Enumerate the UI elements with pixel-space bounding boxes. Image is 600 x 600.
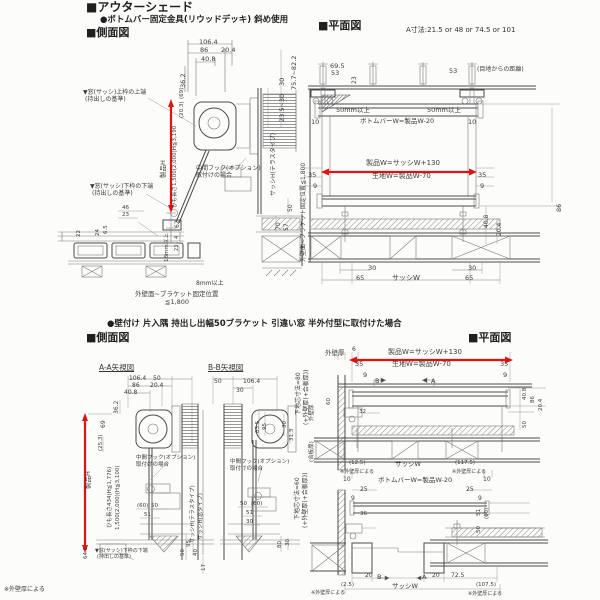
annotation: ≦1,800 <box>165 299 189 306</box>
dim-label: 57 <box>284 223 290 231</box>
dim-label: 36 <box>360 512 367 518</box>
dim-label: 36.2 <box>180 74 187 88</box>
dim-label: 10 <box>483 477 491 483</box>
dim-label: サッシH(テラスタイプ) <box>271 133 277 196</box>
dim-label: 生地W=製品W-70 <box>392 361 451 368</box>
dim-label: 86 <box>531 396 537 403</box>
dim-label: 4 <box>175 236 180 239</box>
dim-label: B <box>375 378 379 385</box>
dim-label: 51 <box>477 509 483 516</box>
dim-label: (20.3) <box>180 101 186 118</box>
dim-label: (107.5) <box>476 583 496 589</box>
dim-label: (60) <box>485 508 491 519</box>
dim-label: 25 <box>360 487 368 493</box>
annotation: 外壁面~ブラケット固定位置≦1,800 <box>301 163 307 262</box>
dim-label: ひも長さ1,500(2,000)H≦3,190 <box>173 126 179 208</box>
dim-label: 50 <box>181 549 187 556</box>
dim-label: 30 <box>286 539 292 546</box>
dim-label: 20.4 <box>150 383 163 389</box>
dim-label: 23 <box>122 213 129 219</box>
dim-label: 製品H <box>85 471 92 489</box>
plan-view-2-heading: ■平面図 <box>468 332 511 344</box>
dim-label: 60 <box>327 398 333 405</box>
dim-label: 23.5~30 <box>279 94 286 122</box>
dim-label: 23 <box>175 245 180 251</box>
dim-label: 86 <box>556 204 563 212</box>
dim-label: (12.5) <box>349 461 366 467</box>
dim-label: ひも長さ434(H≦1,776) <box>108 467 114 528</box>
dim-label: 20.4 <box>539 399 545 411</box>
dim-label: 75.7~82.2 <box>291 56 298 90</box>
dim-label: ボトムバーW=製品W-20 <box>360 118 434 125</box>
dim-label: 83.5 <box>256 421 262 433</box>
annotation: ※外壁厚による <box>311 591 345 596</box>
dim-label: 106.4 <box>199 39 218 46</box>
dim-label: 30 <box>468 265 476 272</box>
annotation: (持出しの基準) <box>97 555 131 560</box>
dim-label: 20 <box>365 573 373 579</box>
dim-label: B <box>377 574 381 581</box>
dim-label: 10 <box>343 477 351 483</box>
dim-label: (+外壁厚(+合板厚)) <box>303 473 309 528</box>
dim-label: 95 <box>187 540 193 547</box>
dim-label: 製品H <box>160 160 167 178</box>
section-2-subtitle: ●壁付け 片入隅 持出し出幅50ブラケット 引違い窓 半外付型に取付けた場合 <box>107 320 402 329</box>
dim-label: 35 <box>500 361 508 368</box>
annotation: ※外壁厚による <box>4 587 45 593</box>
aa-section-label: A-A矢視図 <box>99 364 134 372</box>
dim-label: 35 <box>355 361 363 368</box>
dim-label: サッシW <box>392 275 420 282</box>
annotation: ※外壁厚による <box>452 470 486 475</box>
dim-label: ボトムバーW=製品W-20 <box>378 477 452 484</box>
dim-label: 35 <box>308 172 316 179</box>
dim-label: 50 <box>477 526 483 533</box>
dim-label: 70 <box>276 222 282 230</box>
dim-label: 9 <box>351 496 355 502</box>
dim-label: 24 <box>96 229 102 236</box>
dim-label: 50 <box>151 504 158 510</box>
dim-label: 62 <box>175 220 181 228</box>
dim-label: (合板厚) <box>310 441 316 462</box>
dim-label: サッシW <box>395 461 421 468</box>
dim-label: 9 <box>313 183 317 190</box>
dim-label: 30 <box>283 421 289 428</box>
annotation: 取付けの場合 <box>196 173 232 179</box>
dim-label: 30 <box>246 520 253 526</box>
dim-label: 製品W=サッシW+130 <box>388 349 462 356</box>
dim-label: サッシW <box>392 583 418 590</box>
dim-label: 50mm以上 <box>427 107 461 114</box>
annotation: (持出しの基準) <box>85 97 126 103</box>
dim-label: (69) <box>180 88 186 99</box>
dim-label: (60) <box>137 504 148 510</box>
technical-drawing-page: ■アウターシェード ●ボトムバー固定金具(リウッドデッキ) 斜め使用 ■側面図 … <box>0 0 600 600</box>
dim-label: 8mm以上 <box>196 281 224 287</box>
dim-label: 65 <box>465 275 473 282</box>
dim-label: 25 <box>466 487 474 493</box>
dim-label: 1,500(2,000)(H≦3,100) <box>116 465 122 530</box>
dim-label: 95 <box>263 423 269 430</box>
dim-label: A <box>431 378 435 385</box>
label-layer: ■アウターシェード ●ボトムバー固定金具(リウッドデッキ) 斜め使用 ■側面図 … <box>0 0 600 600</box>
dim-label: 32 <box>359 410 366 416</box>
dim-label: (25.3) <box>99 434 105 451</box>
dim-label: 53 <box>449 68 457 75</box>
annotation: 外壁面~ブラケット固定位置 <box>135 291 218 298</box>
annotation: ※外壁厚による <box>340 470 374 475</box>
dim-label: 31.3 <box>290 429 296 441</box>
dim-label: 23 <box>352 76 358 84</box>
dim-label: 30 <box>236 388 244 394</box>
dim-label: (60) <box>251 502 262 508</box>
dim-label: (2.5) <box>341 583 354 589</box>
dim-label: 80 <box>278 541 284 548</box>
dim-label: 9 <box>480 183 484 190</box>
dim-label: 20 <box>432 573 440 579</box>
dim-label: 10 <box>311 119 319 126</box>
dim-label: 69 <box>101 420 107 428</box>
dim-label: 9 <box>478 496 482 502</box>
dim-label: 40 <box>194 549 200 556</box>
page-title: ■アウターシェード <box>86 1 193 14</box>
dim-label: 51 <box>246 511 253 517</box>
annotation: ※外壁厚による <box>468 592 502 597</box>
dim-label: A <box>422 574 426 581</box>
dim-label: 30 <box>368 265 376 272</box>
annotation: 中間フック(オプション) <box>136 456 195 462</box>
dim-label: 64.5 <box>84 547 90 559</box>
dim-label: 35 <box>478 172 486 179</box>
annotation: 中間フック(オプション) <box>230 460 289 466</box>
dim-label: サッシH(テラスタイプ) <box>191 485 197 543</box>
dim-label: 20.4 <box>497 223 503 236</box>
dim-label: 下地芯寸法=60 <box>295 477 301 520</box>
dim-label: 50 <box>288 204 294 212</box>
side-view-2-heading: ■側面図 <box>86 332 129 344</box>
dim-label: 51 <box>144 513 151 519</box>
dim-label: 生地W=製品W-70 <box>372 173 431 180</box>
dim-label: 20.4 <box>221 47 235 54</box>
dim-label: 製品W=サッシW+130 <box>366 160 440 167</box>
dim-label: 36.2 <box>114 401 120 414</box>
a-dimension-note: A寸法:21.5 or 48 or 74.5 or 101 <box>406 27 515 35</box>
dim-label: 6 <box>352 347 356 353</box>
dim-label: 72.5 <box>451 573 464 579</box>
dim-label: 外壁厚 <box>310 404 316 421</box>
dim-label: サッシH(窓タイプ) <box>199 493 205 540</box>
dim-label: 40.8 <box>124 390 137 396</box>
dim-label: 65 <box>356 275 364 282</box>
dim-label: 17 <box>202 564 208 571</box>
dim-label: 53 <box>331 70 339 77</box>
dim-label: 9 <box>363 372 367 379</box>
plan-view-1-heading: ■平面図 <box>318 20 361 32</box>
dim-label: 50 <box>240 502 247 508</box>
dim-label: (117.5) <box>455 461 475 467</box>
dim-label: 下地芯寸法=80 <box>296 372 302 415</box>
dim-label: 10 <box>468 119 476 126</box>
bb-section-label: B-B矢視図 <box>208 364 243 372</box>
side-view-1-heading: ■側面図 <box>86 27 129 39</box>
dim-label: 50mm以上 <box>336 107 370 114</box>
annotation: (目地からの距離) <box>477 67 524 73</box>
dim-label: 40.8 <box>523 388 529 400</box>
dim-label: 106.4 <box>243 379 260 385</box>
dim-label: 6.5 <box>104 225 110 234</box>
dim-label: 86 <box>200 47 208 54</box>
dim-label: 40.8 <box>201 56 215 63</box>
dim-label: 50 <box>214 379 222 385</box>
annotation: 取付けの場合 <box>230 467 263 473</box>
dim-label: 18mm以上 <box>165 233 171 262</box>
page-subtitle: ●ボトムバー固定金具(リウッドデッキ) 斜め使用 <box>100 16 288 25</box>
dim-label: 22 <box>77 230 83 237</box>
dim-label: 30 <box>279 78 286 86</box>
dim-label: 外壁厚 <box>325 350 345 357</box>
dim-label: 50 <box>523 421 529 428</box>
dim-label: 40.8 <box>484 215 490 228</box>
dim-label: 46 <box>122 206 129 212</box>
dim-label: 9 <box>503 372 507 379</box>
annotation: (持出しの基準) <box>92 191 133 197</box>
annotation: 取付けの場合 <box>136 463 169 469</box>
